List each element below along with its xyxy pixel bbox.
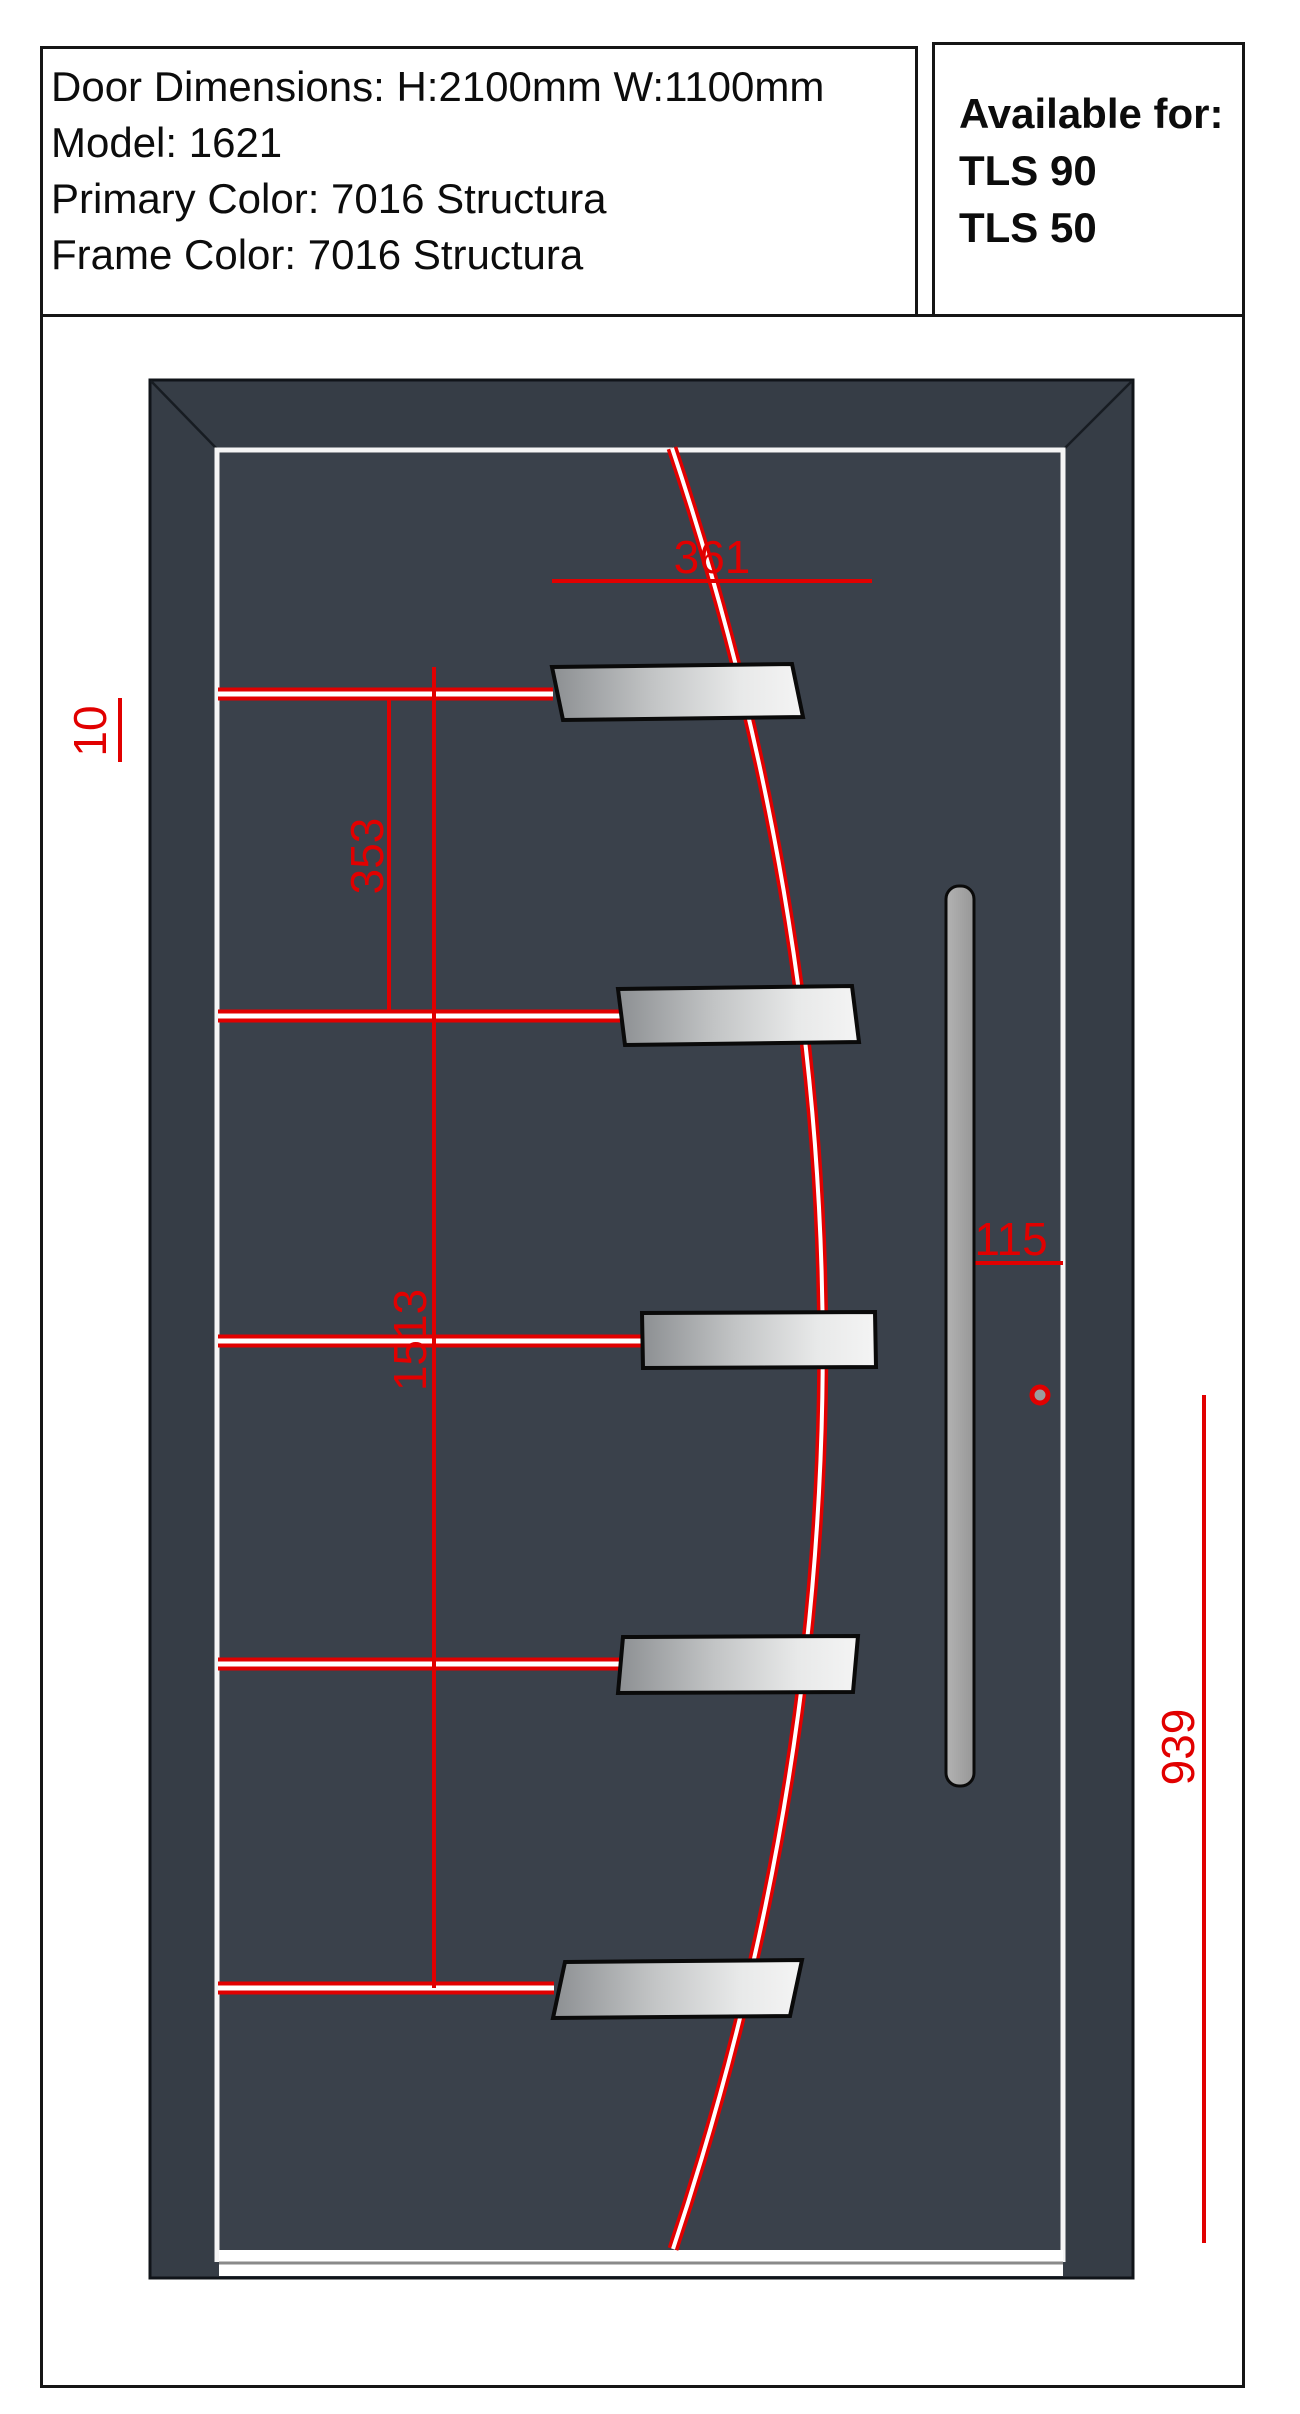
door-drawing (0, 0, 1300, 2414)
dim-label-1513: 1513 (387, 1289, 433, 1391)
applique-bar-3 (642, 1312, 876, 1368)
door-spec-sheet: Door Dimensions: H:2100mm W:1100mm Model… (0, 0, 1300, 2414)
dim-label-361: 361 (674, 534, 751, 580)
dim-label-10: 10 (67, 705, 113, 756)
applique-bar-2 (618, 986, 859, 1045)
dim-label-353: 353 (344, 818, 390, 895)
applique-bar-5 (553, 1960, 802, 2018)
lock-cylinder (1032, 1387, 1048, 1403)
door-handle (946, 886, 974, 1786)
applique-bar-4 (618, 1636, 858, 1693)
dim-label-939: 939 (1155, 1709, 1201, 1786)
dim-label-115: 115 (974, 1216, 1047, 1262)
applique-bar-1 (552, 664, 803, 720)
